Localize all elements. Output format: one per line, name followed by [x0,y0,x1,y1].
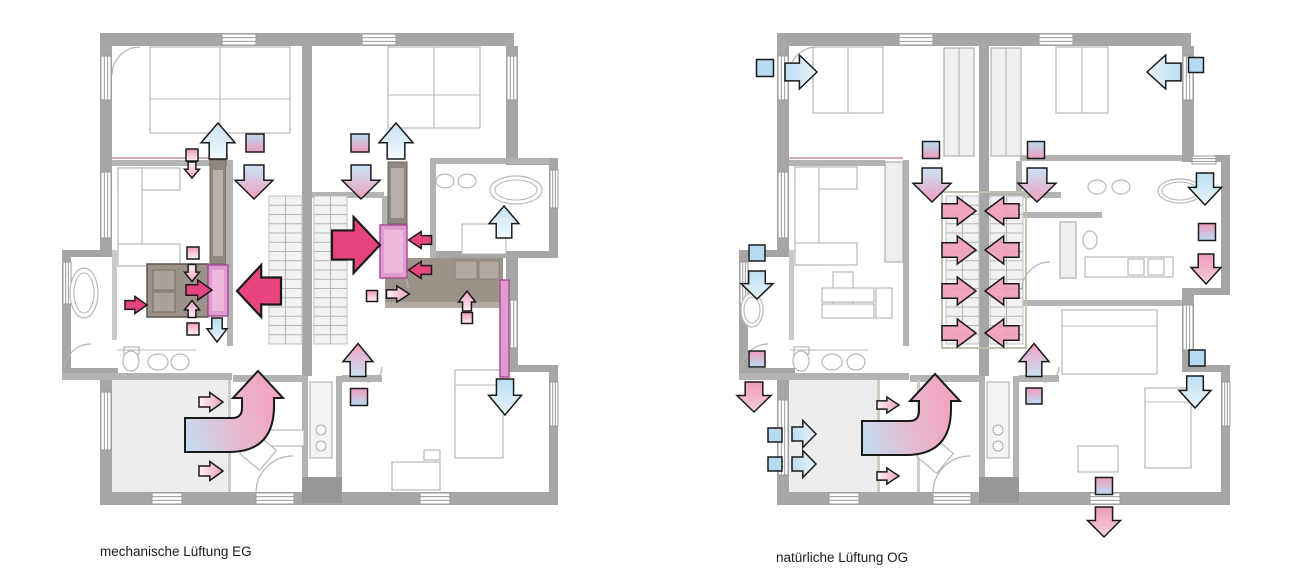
plan-eg-architecture [62,33,558,505]
overflow-vent [923,142,940,159]
floorplans-svg: mechanische Lüftung EG natürliche Lüftun… [0,0,1300,580]
eg-kitchen-edge-wall [385,302,503,308]
overflow-vent [462,313,473,324]
supply-air-arrow [1147,55,1181,89]
og-entry-doors [987,382,1009,458]
eg-entry-doors [310,382,332,458]
transfer-air-arrow [877,468,899,484]
overflow-vent [187,247,199,259]
overflow-vent [186,149,198,161]
overflow-vent [351,389,368,406]
overflow-vent [757,60,774,77]
supply-air-arrow [785,55,817,89]
extract-air-arrow [409,232,432,249]
overflow-vent [768,428,782,442]
overflow-vent [749,245,765,261]
overflow-vent [246,134,264,152]
overflow-vent [1189,58,1204,73]
overflow-vent [367,291,378,302]
overflow-vent [749,351,765,367]
eg-stair-right [314,196,347,344]
overflow-vent [1096,478,1113,495]
extract-air-arrow [125,297,147,314]
ventilation-diagram: mechanische Lüftung EG natürliche Lüftun… [0,0,1300,580]
overflow-vent [351,134,369,152]
supply-air-arrow [207,318,227,342]
air-duct [500,280,509,377]
eg-bath-nook-wall [112,250,117,340]
transfer-air-arrow [877,397,899,413]
transfer-air-arrow [235,165,273,199]
plan-label-eg: mechanische Lüftung EG [100,544,252,559]
exhaust-air-arrow [737,382,771,412]
overflow-vent [1189,350,1205,366]
plan-label-og: natürliche Lüftung OG [776,550,908,565]
overflow-vent [1028,142,1045,159]
overflow-vent [1199,224,1216,241]
exhaust-air-arrow [1191,254,1221,284]
og-bath-nook-wall [789,250,794,340]
overflow-vent [187,323,199,335]
eg-entry-base [302,477,342,503]
transfer-air-arrow [913,168,951,202]
og-entry-base [979,477,1019,503]
exhaust-air-arrow [1088,507,1121,537]
overflow-vent [1026,388,1042,404]
eg-stair-left [269,196,302,344]
overflow-vent [768,457,782,471]
transfer-air-arrow [343,344,373,377]
